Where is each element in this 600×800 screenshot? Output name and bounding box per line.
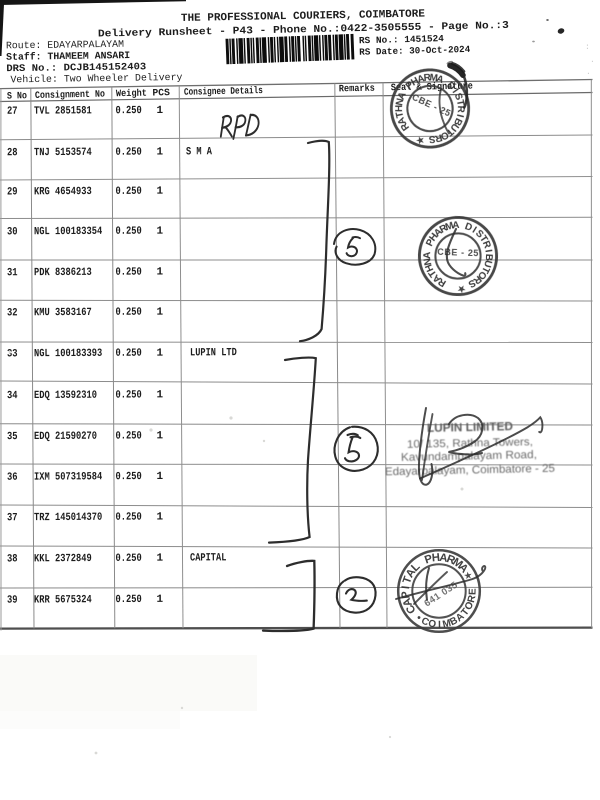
svg-text:1: 1	[156, 389, 163, 401]
svg-text:0.250: 0.250	[115, 105, 141, 117]
svg-text:KKL 2372849: KKL 2372849	[34, 553, 92, 565]
svg-text:NGL 100183393: NGL 100183393	[34, 348, 103, 360]
svg-text:1: 1	[156, 266, 163, 278]
svg-text:0.250: 0.250	[115, 471, 141, 483]
svg-text:1: 1	[156, 105, 163, 117]
svg-text:1: 1	[156, 186, 163, 198]
svg-text:.: .	[586, 68, 591, 77]
svg-text:31: 31	[7, 267, 18, 279]
svg-text:0.250: 0.250	[115, 267, 141, 279]
svg-text:LUPIN LTD: LUPIN LTD	[190, 347, 237, 359]
svg-text:32: 32	[7, 307, 18, 319]
svg-text:NGL 100183354: NGL 100183354	[34, 226, 103, 238]
svg-text:PCS: PCS	[152, 87, 170, 98]
svg-text:LUPIN LIMITED: LUPIN LIMITED	[427, 419, 514, 435]
svg-text:1: 1	[156, 594, 163, 606]
svg-text:27: 27	[7, 106, 18, 118]
svg-text:PDK 8386213: PDK 8386213	[34, 267, 92, 279]
svg-text:1: 1	[156, 226, 163, 238]
svg-text:1: 1	[156, 146, 163, 158]
svg-text:30: 30	[7, 226, 18, 238]
svg-text:0.250: 0.250	[115, 512, 141, 524]
svg-text:EDQ 13592310: EDQ 13592310	[34, 390, 97, 402]
svg-text:38: 38	[7, 553, 18, 565]
svg-text:TVL 2851581: TVL 2851581	[34, 105, 92, 117]
svg-text:1: 1	[156, 553, 163, 565]
svg-text:0.250: 0.250	[115, 186, 141, 198]
svg-text:1: 1	[156, 430, 163, 442]
svg-text::: :	[585, 43, 590, 52]
svg-text:0.250: 0.250	[115, 307, 141, 319]
svg-text:0.250: 0.250	[115, 348, 141, 360]
svg-text:A: A	[422, 252, 433, 259]
svg-text:1: 1	[156, 471, 163, 483]
svg-text:35: 35	[7, 431, 18, 443]
svg-text:E: E	[468, 588, 479, 595]
svg-text:0.250: 0.250	[115, 553, 141, 565]
svg-text:37: 37	[7, 512, 18, 524]
svg-text:Weight: Weight	[116, 88, 147, 100]
svg-text:Consignment No: Consignment No	[35, 89, 105, 102]
svg-text:TRZ 145014370: TRZ 145014370	[34, 512, 102, 524]
svg-text:Remarks: Remarks	[339, 83, 375, 95]
svg-text:CBE - 25: CBE - 25	[437, 247, 479, 258]
svg-text:IXM 507319584: IXM 507319584	[34, 471, 103, 483]
svg-text:0.250: 0.250	[115, 226, 141, 238]
svg-text:TNJ 5153574: TNJ 5153574	[34, 147, 92, 159]
svg-text:S: S	[428, 133, 436, 144]
svg-text:39: 39	[7, 595, 18, 607]
svg-text:KRR 5675324: KRR 5675324	[34, 594, 92, 606]
svg-text:S M A: S M A	[186, 146, 212, 158]
svg-text:28: 28	[7, 147, 18, 159]
svg-text:KRG 4654933: KRG 4654933	[34, 186, 92, 198]
svg-text:33: 33	[7, 348, 18, 360]
svg-text:S No: S No	[7, 90, 27, 101]
svg-text:Consignee Details: Consignee Details	[184, 85, 263, 98]
svg-text:I: I	[438, 620, 441, 631]
svg-text:0.250: 0.250	[115, 430, 141, 442]
svg-text:1: 1	[156, 307, 163, 319]
svg-text:0.250: 0.250	[115, 147, 141, 159]
svg-text:0.250: 0.250	[115, 594, 141, 606]
svg-text:34: 34	[7, 390, 18, 402]
svg-text:CAPITAL: CAPITAL	[190, 552, 227, 564]
svg-text:Vehicle: Two Wheeler Delivery: Vehicle: Two Wheeler Delivery	[10, 72, 182, 86]
svg-text:1: 1	[156, 348, 163, 360]
svg-text:1: 1	[156, 511, 163, 523]
svg-text:KMU 3583167: KMU 3583167	[34, 307, 92, 319]
svg-text:29: 29	[7, 186, 18, 198]
svg-text:★: ★	[456, 282, 467, 295]
svg-text:0.250: 0.250	[115, 389, 141, 401]
svg-text:.: .	[590, 56, 595, 65]
svg-text:EDQ 21590270: EDQ 21590270	[34, 431, 97, 443]
svg-text:36: 36	[7, 472, 18, 484]
